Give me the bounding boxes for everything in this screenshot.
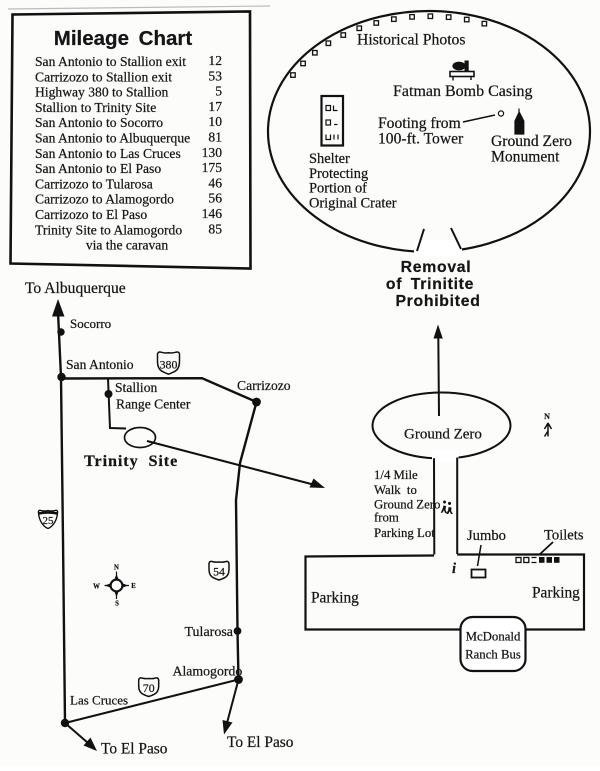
svg-text:Fatman Bomb Casing: Fatman Bomb Casing	[393, 83, 533, 100]
svg-text:Trinity Site: Trinity Site	[84, 452, 178, 470]
svg-text:Prohibited: Prohibited	[395, 293, 480, 310]
svg-text:E: E	[131, 583, 136, 590]
svg-text:Las Cruces: Las Cruces	[70, 693, 128, 708]
svg-text:Jumbo: Jumbo	[467, 528, 506, 544]
svg-text:Carrizozo to Tularosa: Carrizozo to Tularosa	[35, 176, 153, 191]
svg-text:Carrizozo to Alamogordo: Carrizozo to Alamogordo	[35, 192, 174, 207]
svg-text:175: 175	[202, 160, 223, 175]
svg-text:San Antonio to El Paso: San Antonio to El Paso	[35, 161, 161, 176]
svg-text:Ranch Bus: Ranch Bus	[465, 648, 521, 662]
svg-text:Walk to: Walk to	[374, 483, 417, 497]
svg-text:Socorro: Socorro	[70, 316, 111, 331]
svg-text:1/4 Mile: 1/4 Mile	[374, 468, 418, 482]
svg-text:100-ft. Tower: 100-ft. Tower	[378, 131, 464, 148]
svg-text:Protecting: Protecting	[309, 166, 368, 182]
svg-text:To Albuquerque: To Albuquerque	[25, 280, 126, 297]
svg-text:Portion of: Portion of	[309, 181, 367, 197]
svg-text:17: 17	[208, 99, 222, 114]
svg-text:McDonald: McDonald	[466, 630, 521, 644]
svg-text:Footing from: Footing from	[378, 115, 461, 132]
svg-text:of Trinitite: of Trinitite	[386, 276, 474, 293]
svg-text:San Antonio to Stallion exit: San Antonio to Stallion exit	[35, 54, 186, 69]
svg-text:Historical Photos: Historical Photos	[357, 32, 466, 49]
svg-text:Stallion to Trinity Site: Stallion to Trinity Site	[35, 100, 156, 115]
svg-text:130: 130	[202, 145, 223, 160]
svg-text:To El Paso: To El Paso	[227, 734, 294, 751]
svg-text:53: 53	[208, 68, 222, 83]
svg-text:Parking: Parking	[532, 585, 580, 602]
svg-text:San Antonio to Albuquerque: San Antonio to Albuquerque	[35, 131, 190, 146]
svg-text:Tularosa: Tularosa	[185, 625, 234, 640]
svg-text:Highway 380 to Stallion: Highway 380 to Stallion	[35, 85, 168, 100]
svg-text:N: N	[544, 412, 550, 421]
svg-text:Trinity Site to Alamogordo: Trinity Site to Alamogordo	[35, 222, 182, 237]
svg-text:from: from	[374, 510, 399, 524]
svg-text:S: S	[115, 601, 119, 608]
svg-text:70: 70	[143, 681, 155, 695]
svg-text:N: N	[114, 565, 119, 572]
svg-text:Mileage Chart: Mileage Chart	[54, 27, 193, 50]
svg-text:Range Center: Range Center	[116, 397, 191, 412]
svg-text:56: 56	[208, 191, 222, 206]
svg-text:Monument: Monument	[491, 149, 560, 166]
svg-text:Ground Zero: Ground Zero	[491, 133, 572, 150]
svg-text:Parking: Parking	[311, 590, 359, 607]
svg-text:46: 46	[208, 175, 222, 190]
svg-text:54: 54	[213, 565, 225, 579]
svg-text:Removal: Removal	[401, 259, 472, 276]
svg-text:San Antonio to Las Cruces: San Antonio to Las Cruces	[35, 146, 181, 161]
svg-text:146: 146	[202, 206, 223, 221]
svg-text:Ground Zero: Ground Zero	[404, 427, 482, 443]
svg-text:Toilets: Toilets	[544, 528, 584, 544]
svg-text:12: 12	[208, 53, 222, 68]
svg-text:San Antonio: San Antonio	[66, 357, 134, 372]
svg-text:Parking Lot: Parking Lot	[374, 526, 435, 540]
svg-text:Carrizozo to Stallion exit: Carrizozo to Stallion exit	[35, 69, 172, 84]
svg-text:W: W	[93, 584, 100, 591]
svg-text:Stallion: Stallion	[115, 380, 157, 395]
svg-text:Alamogordo: Alamogordo	[173, 664, 243, 679]
svg-text:Carrizozo: Carrizozo	[237, 378, 291, 393]
svg-text:Shelter: Shelter	[309, 151, 350, 167]
svg-text:25: 25	[43, 515, 55, 527]
svg-text:10: 10	[208, 114, 222, 129]
svg-text:i: i	[452, 561, 456, 577]
svg-text:85: 85	[208, 221, 222, 236]
svg-text:To El Paso: To El Paso	[101, 741, 168, 758]
svg-text:Original Crater: Original Crater	[309, 195, 397, 211]
svg-text:81: 81	[208, 130, 222, 145]
svg-text:San Antonio to Socorro: San Antonio to Socorro	[35, 115, 163, 130]
svg-text:380: 380	[160, 358, 178, 372]
svg-text:5: 5	[215, 84, 222, 99]
svg-text:Carrizozo to El Paso: Carrizozo to El Paso	[35, 207, 147, 222]
svg-text:via the caravan: via the caravan	[86, 238, 168, 253]
